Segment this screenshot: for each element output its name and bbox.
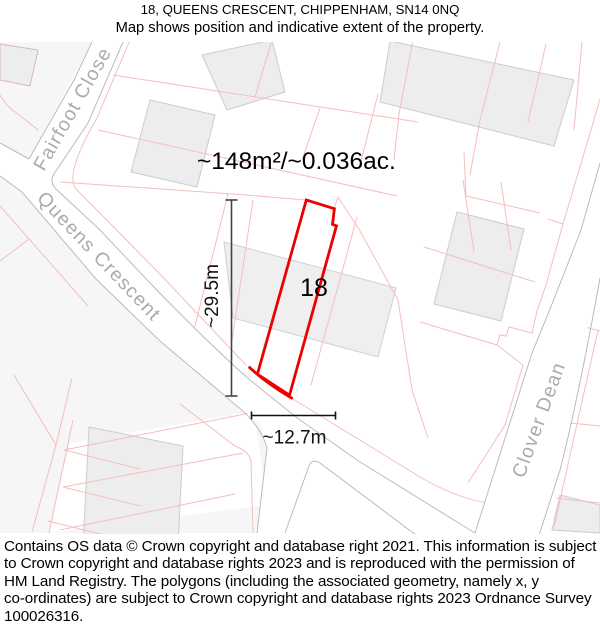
svg-text:~12.7m: ~12.7m xyxy=(263,428,327,449)
svg-text:~29.5m: ~29.5m xyxy=(202,264,223,328)
svg-text:~148m²/~0.036ac.: ~148m²/~0.036ac. xyxy=(197,148,396,175)
svg-text:18: 18 xyxy=(300,274,328,302)
